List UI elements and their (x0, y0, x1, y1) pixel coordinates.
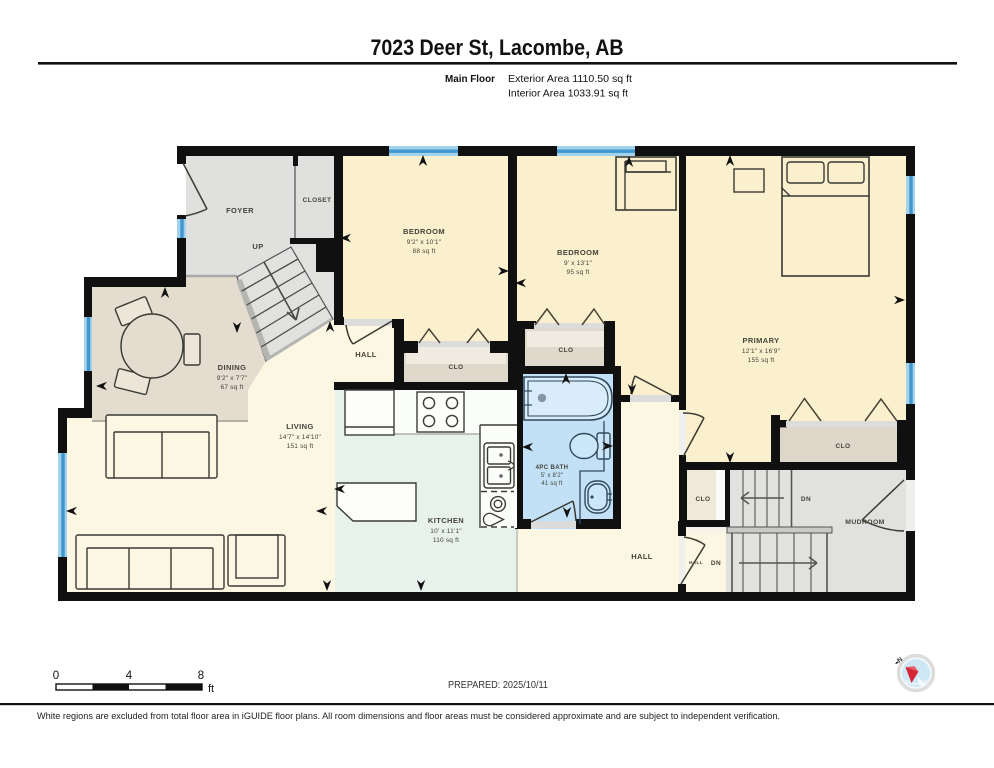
svg-text:CLO: CLO (449, 364, 464, 371)
svg-text:88 sq ft: 88 sq ft (413, 248, 436, 255)
svg-text:12'1" x 16'9": 12'1" x 16'9" (742, 348, 781, 355)
svg-text:4: 4 (126, 670, 133, 682)
svg-text:CLOSET: CLOSET (303, 197, 332, 204)
svg-text:PRIMARY: PRIMARY (742, 336, 779, 345)
svg-text:155 sq ft: 155 sq ft (748, 357, 775, 364)
svg-text:95 sq ft: 95 sq ft (567, 269, 590, 276)
svg-text:KITCHEN: KITCHEN (428, 516, 464, 525)
svg-text:PREPARED: 2025/10/11: PREPARED: 2025/10/11 (448, 679, 548, 691)
svg-text:Interior Area 1033.91 sq ft: Interior Area 1033.91 sq ft (508, 88, 628, 100)
svg-text:HALL: HALL (355, 350, 377, 359)
svg-text:White regions are excluded fro: White regions are excluded from total fl… (37, 711, 780, 721)
svg-text:DN: DN (711, 560, 721, 567)
svg-text:110 sq ft: 110 sq ft (433, 537, 459, 544)
svg-text:41 sq ft: 41 sq ft (541, 481, 562, 487)
svg-text:MUDROOM: MUDROOM (845, 519, 884, 526)
svg-text:14'7" x 14'10": 14'7" x 14'10" (279, 434, 322, 441)
svg-text:BEDROOM: BEDROOM (557, 248, 599, 257)
svg-text:FOYER: FOYER (226, 206, 254, 215)
svg-text:5' x 8'2": 5' x 8'2" (541, 473, 564, 479)
svg-text:LIVING: LIVING (286, 422, 313, 431)
svg-text:4PC BATH: 4PC BATH (536, 465, 569, 471)
svg-text:67 sq ft: 67 sq ft (221, 384, 244, 391)
svg-text:DINING: DINING (218, 363, 247, 372)
svg-text:10' x 11'1": 10' x 11'1" (430, 528, 462, 535)
svg-text:CLO: CLO (559, 347, 574, 354)
svg-text:9'2" x 10'1": 9'2" x 10'1" (407, 239, 442, 246)
svg-text:CLO: CLO (836, 443, 851, 450)
svg-text:DN: DN (801, 496, 811, 503)
svg-text:ft: ft (208, 683, 214, 695)
svg-text:BEDROOM: BEDROOM (403, 227, 445, 236)
svg-text:Main Floor: Main Floor (445, 73, 495, 85)
svg-text:0: 0 (53, 670, 59, 682)
svg-text:Exterior Area 1110.50 sq ft: Exterior Area 1110.50 sq ft (508, 73, 632, 85)
svg-text:UP: UP (252, 242, 263, 251)
svg-text:8: 8 (198, 670, 204, 682)
svg-text:HALL: HALL (689, 560, 703, 565)
svg-text:151 sq ft: 151 sq ft (287, 443, 314, 450)
svg-text:9'2" x 7'7": 9'2" x 7'7" (217, 375, 248, 382)
svg-text:7023 Deer St, Lacombe, AB: 7023 Deer St, Lacombe, AB (371, 35, 624, 60)
svg-text:HALL: HALL (631, 552, 653, 561)
svg-text:9' x 13'1": 9' x 13'1" (564, 260, 593, 267)
svg-text:CLO: CLO (696, 496, 711, 503)
